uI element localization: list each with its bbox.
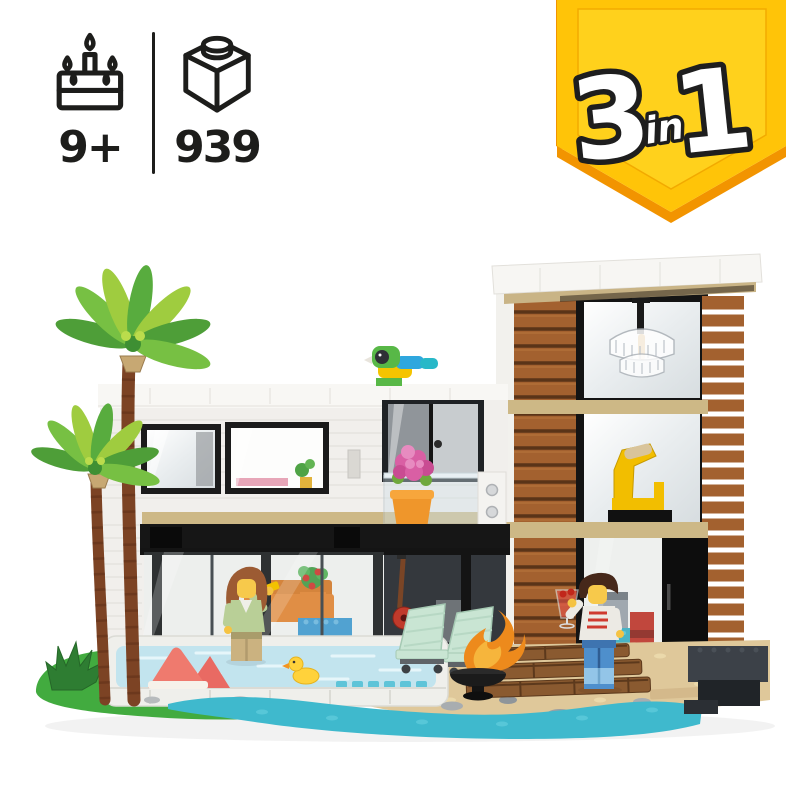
piece-count-label: 939 xyxy=(174,126,260,170)
upper-window-2 xyxy=(225,422,329,494)
tower-right-wood-wall xyxy=(702,296,744,688)
glass-tower xyxy=(492,254,762,688)
badge-bar: 9+ 939 xyxy=(44,30,263,174)
age-badge-label: 9+ xyxy=(58,126,121,170)
product-image: 9+ 939 3 in 1 xyxy=(0,0,800,800)
three-in-one-banner: 3 in 1 xyxy=(556,0,786,224)
tower-base-blocks xyxy=(684,646,768,714)
piece-count-badge: 939 xyxy=(171,30,263,174)
swimming-pool xyxy=(104,636,448,706)
badge-divider xyxy=(152,32,155,174)
banner-text-1: 1 xyxy=(667,43,758,180)
parrot xyxy=(364,346,438,386)
age-badge: 9+ xyxy=(44,30,136,174)
brick-icon xyxy=(176,30,258,116)
cake-icon xyxy=(51,30,129,116)
